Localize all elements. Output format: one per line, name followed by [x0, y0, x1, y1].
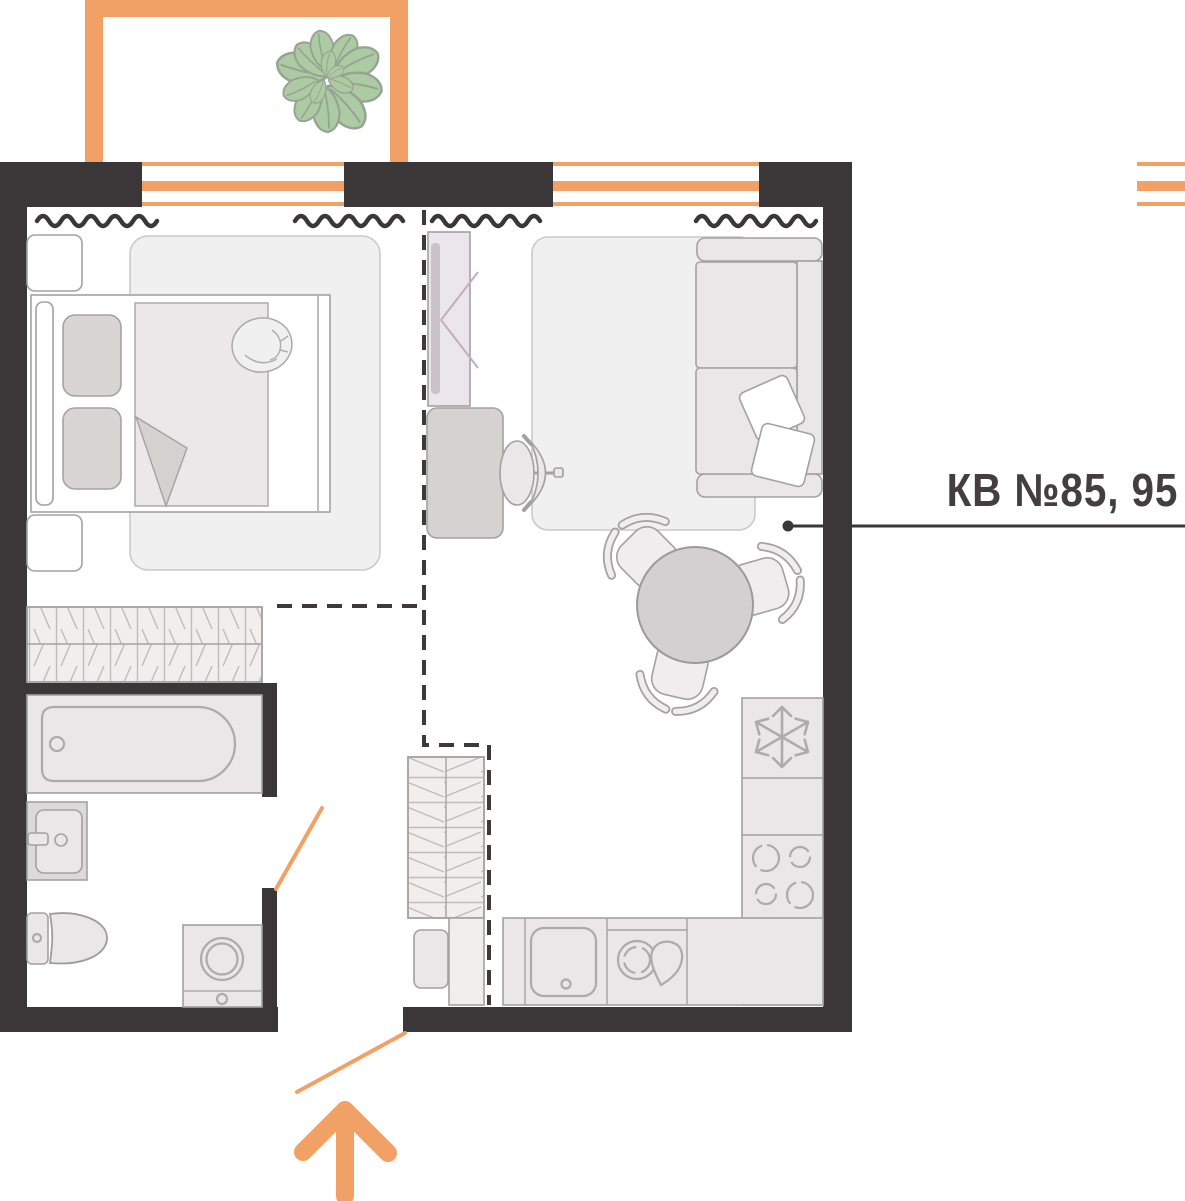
apartment-number-label: КВ №85, 95	[946, 467, 1178, 513]
wavy-line-icon	[37, 216, 157, 226]
balcony	[85, 0, 408, 162]
bed-pillow-bottom	[63, 408, 121, 489]
living-room	[427, 232, 822, 719]
chair-seat	[500, 441, 534, 505]
floor-plan	[0, 0, 1185, 1201]
tv-unit	[428, 232, 478, 406]
bedroom-wardrobe	[27, 607, 262, 682]
neighbor-railing-stub	[1137, 162, 1185, 166]
doors	[276, 808, 405, 1092]
bedroom	[27, 235, 380, 571]
tv-screen	[431, 243, 440, 394]
sofa-throw-pillow	[750, 422, 815, 487]
dining-set	[592, 502, 810, 719]
window-decor	[37, 216, 816, 226]
neighbor-railing-stub	[1137, 181, 1185, 191]
wavy-line-icon	[432, 216, 540, 226]
desk	[427, 408, 503, 538]
bathtub	[27, 695, 262, 793]
sofa-seat-cushion	[696, 262, 797, 368]
arrow-up-icon	[303, 1110, 388, 1196]
wall-bottom-left	[0, 1007, 278, 1032]
nightstand-bottom	[27, 515, 82, 571]
neighbor-railing-stub	[1137, 202, 1185, 206]
wavy-line-icon	[696, 216, 816, 226]
bathroom-door-swing	[276, 808, 322, 889]
faucet-icon	[28, 833, 48, 845]
wall-left	[0, 162, 27, 1032]
entrance-door-swing	[297, 1033, 405, 1092]
nightstand-top	[27, 235, 82, 291]
bed-headboard	[36, 302, 53, 505]
wavy-line-icon	[295, 216, 403, 226]
toilet-tank	[27, 913, 48, 964]
wall-bottom-right	[403, 1007, 852, 1032]
bed-pillow-top	[63, 315, 121, 396]
toilet	[27, 913, 107, 964]
dining-table	[637, 547, 753, 663]
balcony-frame-top	[85, 0, 408, 17]
bathroom-sink	[27, 802, 87, 880]
toilet-bowl	[50, 913, 107, 963]
floor-plan-page: КВ №85, 95	[0, 0, 1185, 1201]
washing-machine	[183, 925, 262, 1007]
hall-closet	[408, 757, 484, 918]
kitchen	[503, 698, 823, 1005]
chair-armrest	[524, 436, 531, 444]
sofa-armrest-top	[697, 238, 822, 261]
wall-bathroom-right-lower	[262, 888, 277, 1007]
balcony-frame-right	[390, 0, 408, 162]
hall-side-panel	[449, 918, 484, 1005]
chair-armrest	[524, 502, 531, 510]
balcony-frame-left	[85, 0, 103, 162]
plant-icon	[273, 29, 384, 136]
balcony-railing	[142, 162, 1185, 206]
hall-cabinet	[414, 930, 448, 988]
bathroom	[27, 695, 262, 1007]
wall-top-middle	[344, 162, 553, 207]
wall-right	[823, 162, 852, 1032]
wall-bathroom-right-upper	[262, 683, 277, 797]
sofa	[696, 238, 822, 497]
